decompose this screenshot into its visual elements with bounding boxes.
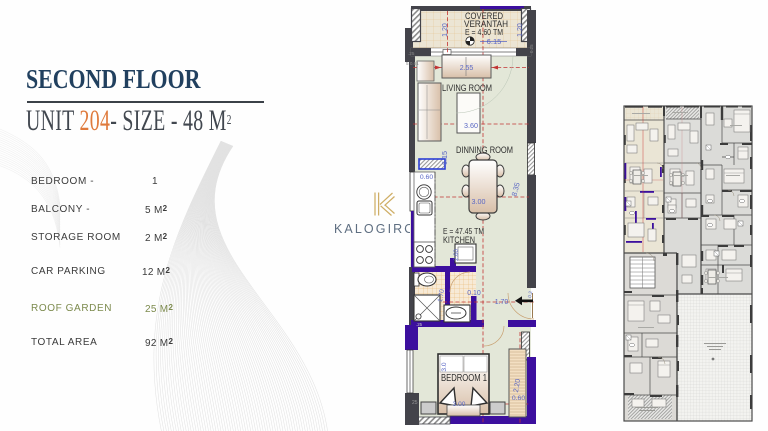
svg-text:5 0.61: 5 0.61	[406, 61, 419, 66]
svg-text:1.20: 1.20	[517, 23, 524, 37]
svg-text:3.60: 3.60	[464, 121, 478, 130]
svg-text:E = 4.60 ΤΜ: E = 4.60 ΤΜ	[465, 28, 503, 37]
svg-text:3.0: 3.0	[441, 362, 448, 371]
svg-text:3.00: 3.00	[472, 197, 486, 206]
svg-text:0.60: 0.60	[512, 395, 525, 402]
svg-text:6.15: 6.15	[440, 151, 449, 165]
svg-text:2.60: 2.60	[454, 249, 460, 261]
svg-text:.25: .25	[408, 51, 415, 56]
svg-text:KITCHEN: KITCHEN	[443, 235, 475, 245]
svg-text:LIVING ROOM: LIVING ROOM	[442, 83, 492, 94]
svg-text:BEDROOM 1: BEDROOM 1	[441, 373, 487, 384]
svg-text:.25: .25	[416, 322, 423, 327]
svg-text:0.60: 0.60	[420, 174, 433, 181]
svg-text:1.20: 1.20	[442, 23, 449, 37]
svg-text:DINNING ROOM: DINNING ROOM	[456, 145, 513, 156]
svg-text:0.2: 0.2	[527, 290, 534, 298]
svg-text:0.10: 0.10	[467, 290, 481, 297]
svg-text:3.00: 3.00	[453, 401, 466, 408]
svg-text:1.70: 1.70	[495, 299, 509, 306]
svg-text:0.25: 0.25	[529, 44, 534, 53]
svg-text:2.55: 2.55	[460, 65, 474, 72]
svg-text:25: 25	[412, 400, 418, 406]
